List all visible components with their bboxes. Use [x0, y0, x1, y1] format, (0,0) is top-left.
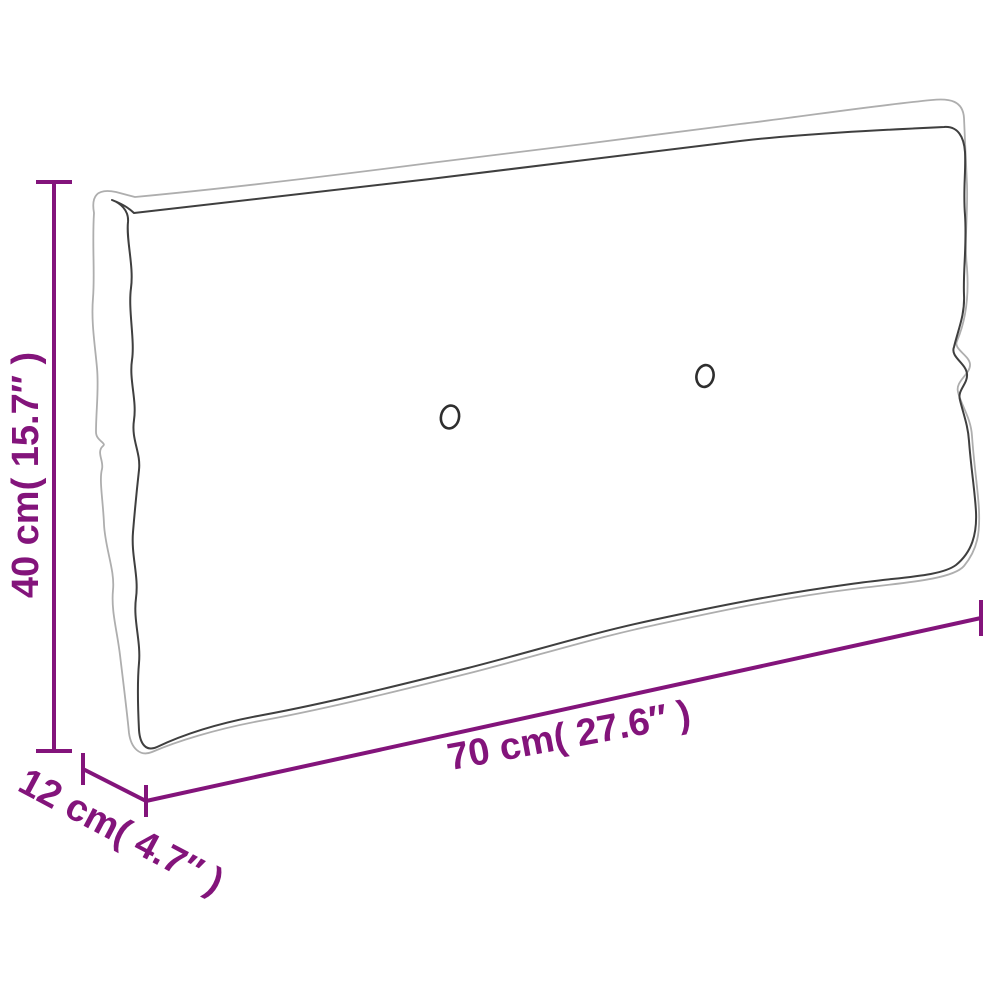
button-tuft-right-icon — [694, 363, 715, 388]
cushion-seam-outline — [112, 127, 976, 749]
length-dimension-line — [146, 618, 981, 801]
dimension-lines — [36, 182, 981, 817]
button-tufts — [439, 363, 716, 430]
cushion-dimension-diagram: 40 cm( 15.7″ ) 70 cm( 27.6″ ) 12 cm( 4.7… — [0, 0, 1000, 1000]
height-dimension-label: 40 cm( 15.7″ ) — [7, 352, 45, 598]
button-tuft-left-icon — [439, 404, 461, 430]
cushion-outer-outline — [92, 99, 979, 753]
